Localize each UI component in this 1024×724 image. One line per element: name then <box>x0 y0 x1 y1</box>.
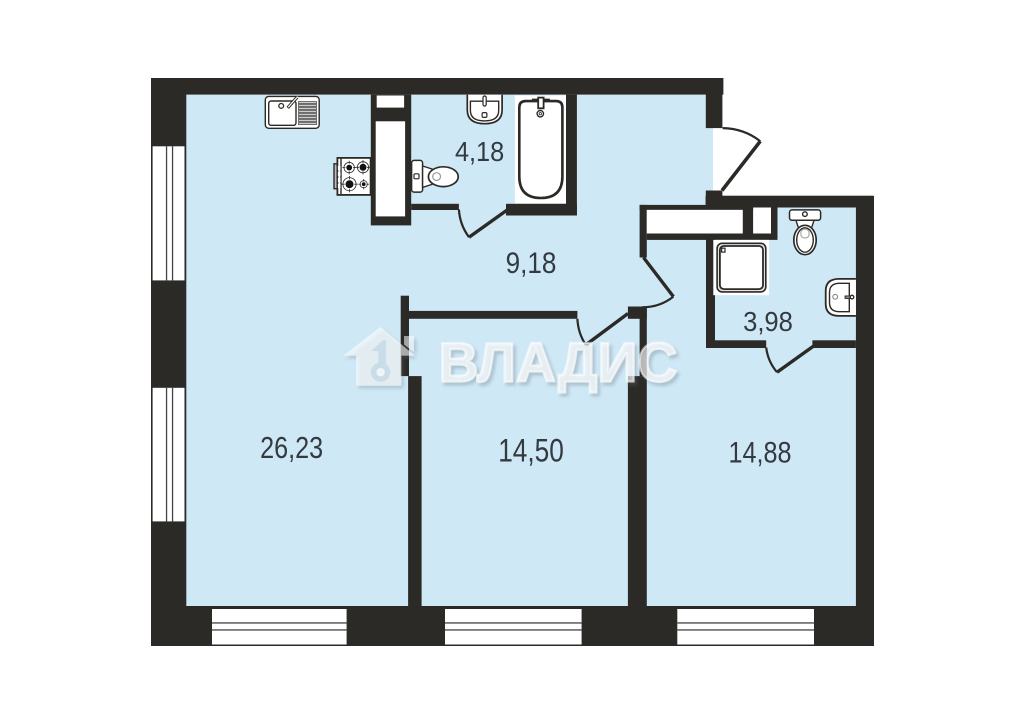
svg-text:9,18: 9,18 <box>506 247 557 280</box>
svg-text:14,50: 14,50 <box>498 432 564 468</box>
svg-text:ВЛАДИС: ВЛАДИС <box>438 331 677 394</box>
svg-text:3,98: 3,98 <box>743 306 793 337</box>
svg-text:4,18: 4,18 <box>455 136 504 167</box>
svg-text:14,88: 14,88 <box>729 437 792 470</box>
svg-text:26,23: 26,23 <box>260 430 323 465</box>
